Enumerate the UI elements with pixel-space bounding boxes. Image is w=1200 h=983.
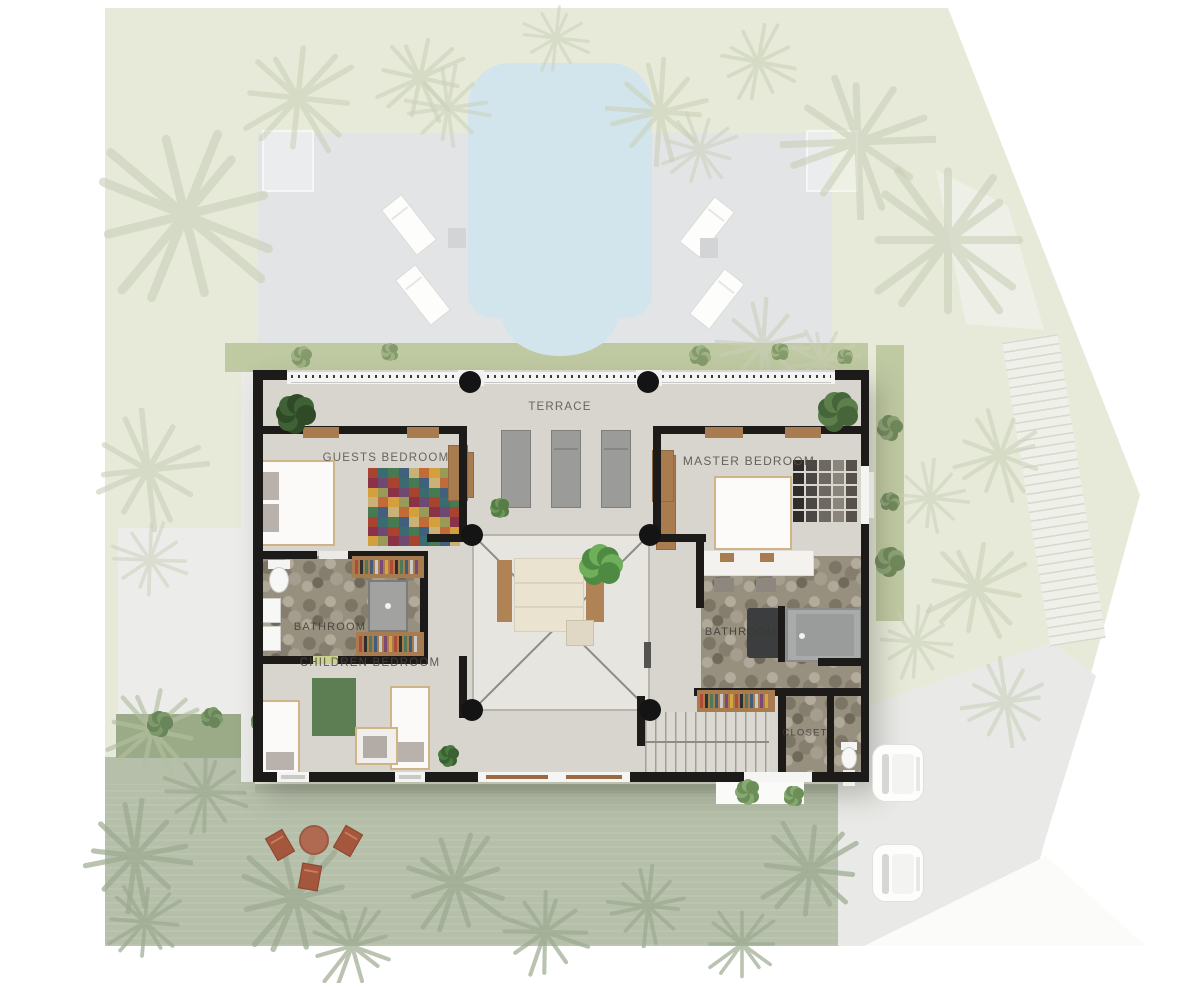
room-label-master-bedroom: MASTER BEDROOM — [683, 454, 815, 468]
column — [459, 371, 481, 393]
parked-car — [872, 844, 924, 902]
room-label-children-bedroom: CHILDREN BEDROOM — [300, 657, 441, 669]
column — [639, 699, 661, 721]
column — [461, 699, 483, 721]
corner-plant-master — [814, 388, 862, 436]
column — [461, 524, 483, 546]
room-label-terrace: TERRACE — [528, 401, 591, 413]
floorplan-canvas: TERRACEGUESTS BEDROOMMASTER BEDROOMBATHR… — [0, 0, 1200, 983]
column — [637, 371, 659, 393]
column — [639, 524, 661, 546]
parked-car — [872, 744, 924, 802]
room-label-closet: CLOSET — [782, 728, 827, 739]
topiary-plant — [272, 390, 320, 438]
room-label-bathroom-guests: BATHROOM — [294, 621, 366, 633]
room-label-guests-bedroom: GUESTS BEDROOM — [323, 452, 450, 464]
kids-room-plant — [436, 743, 462, 769]
stair-rail — [0, 0, 1200, 983]
room-label-bathroom-master: BATHROOM — [705, 626, 777, 638]
